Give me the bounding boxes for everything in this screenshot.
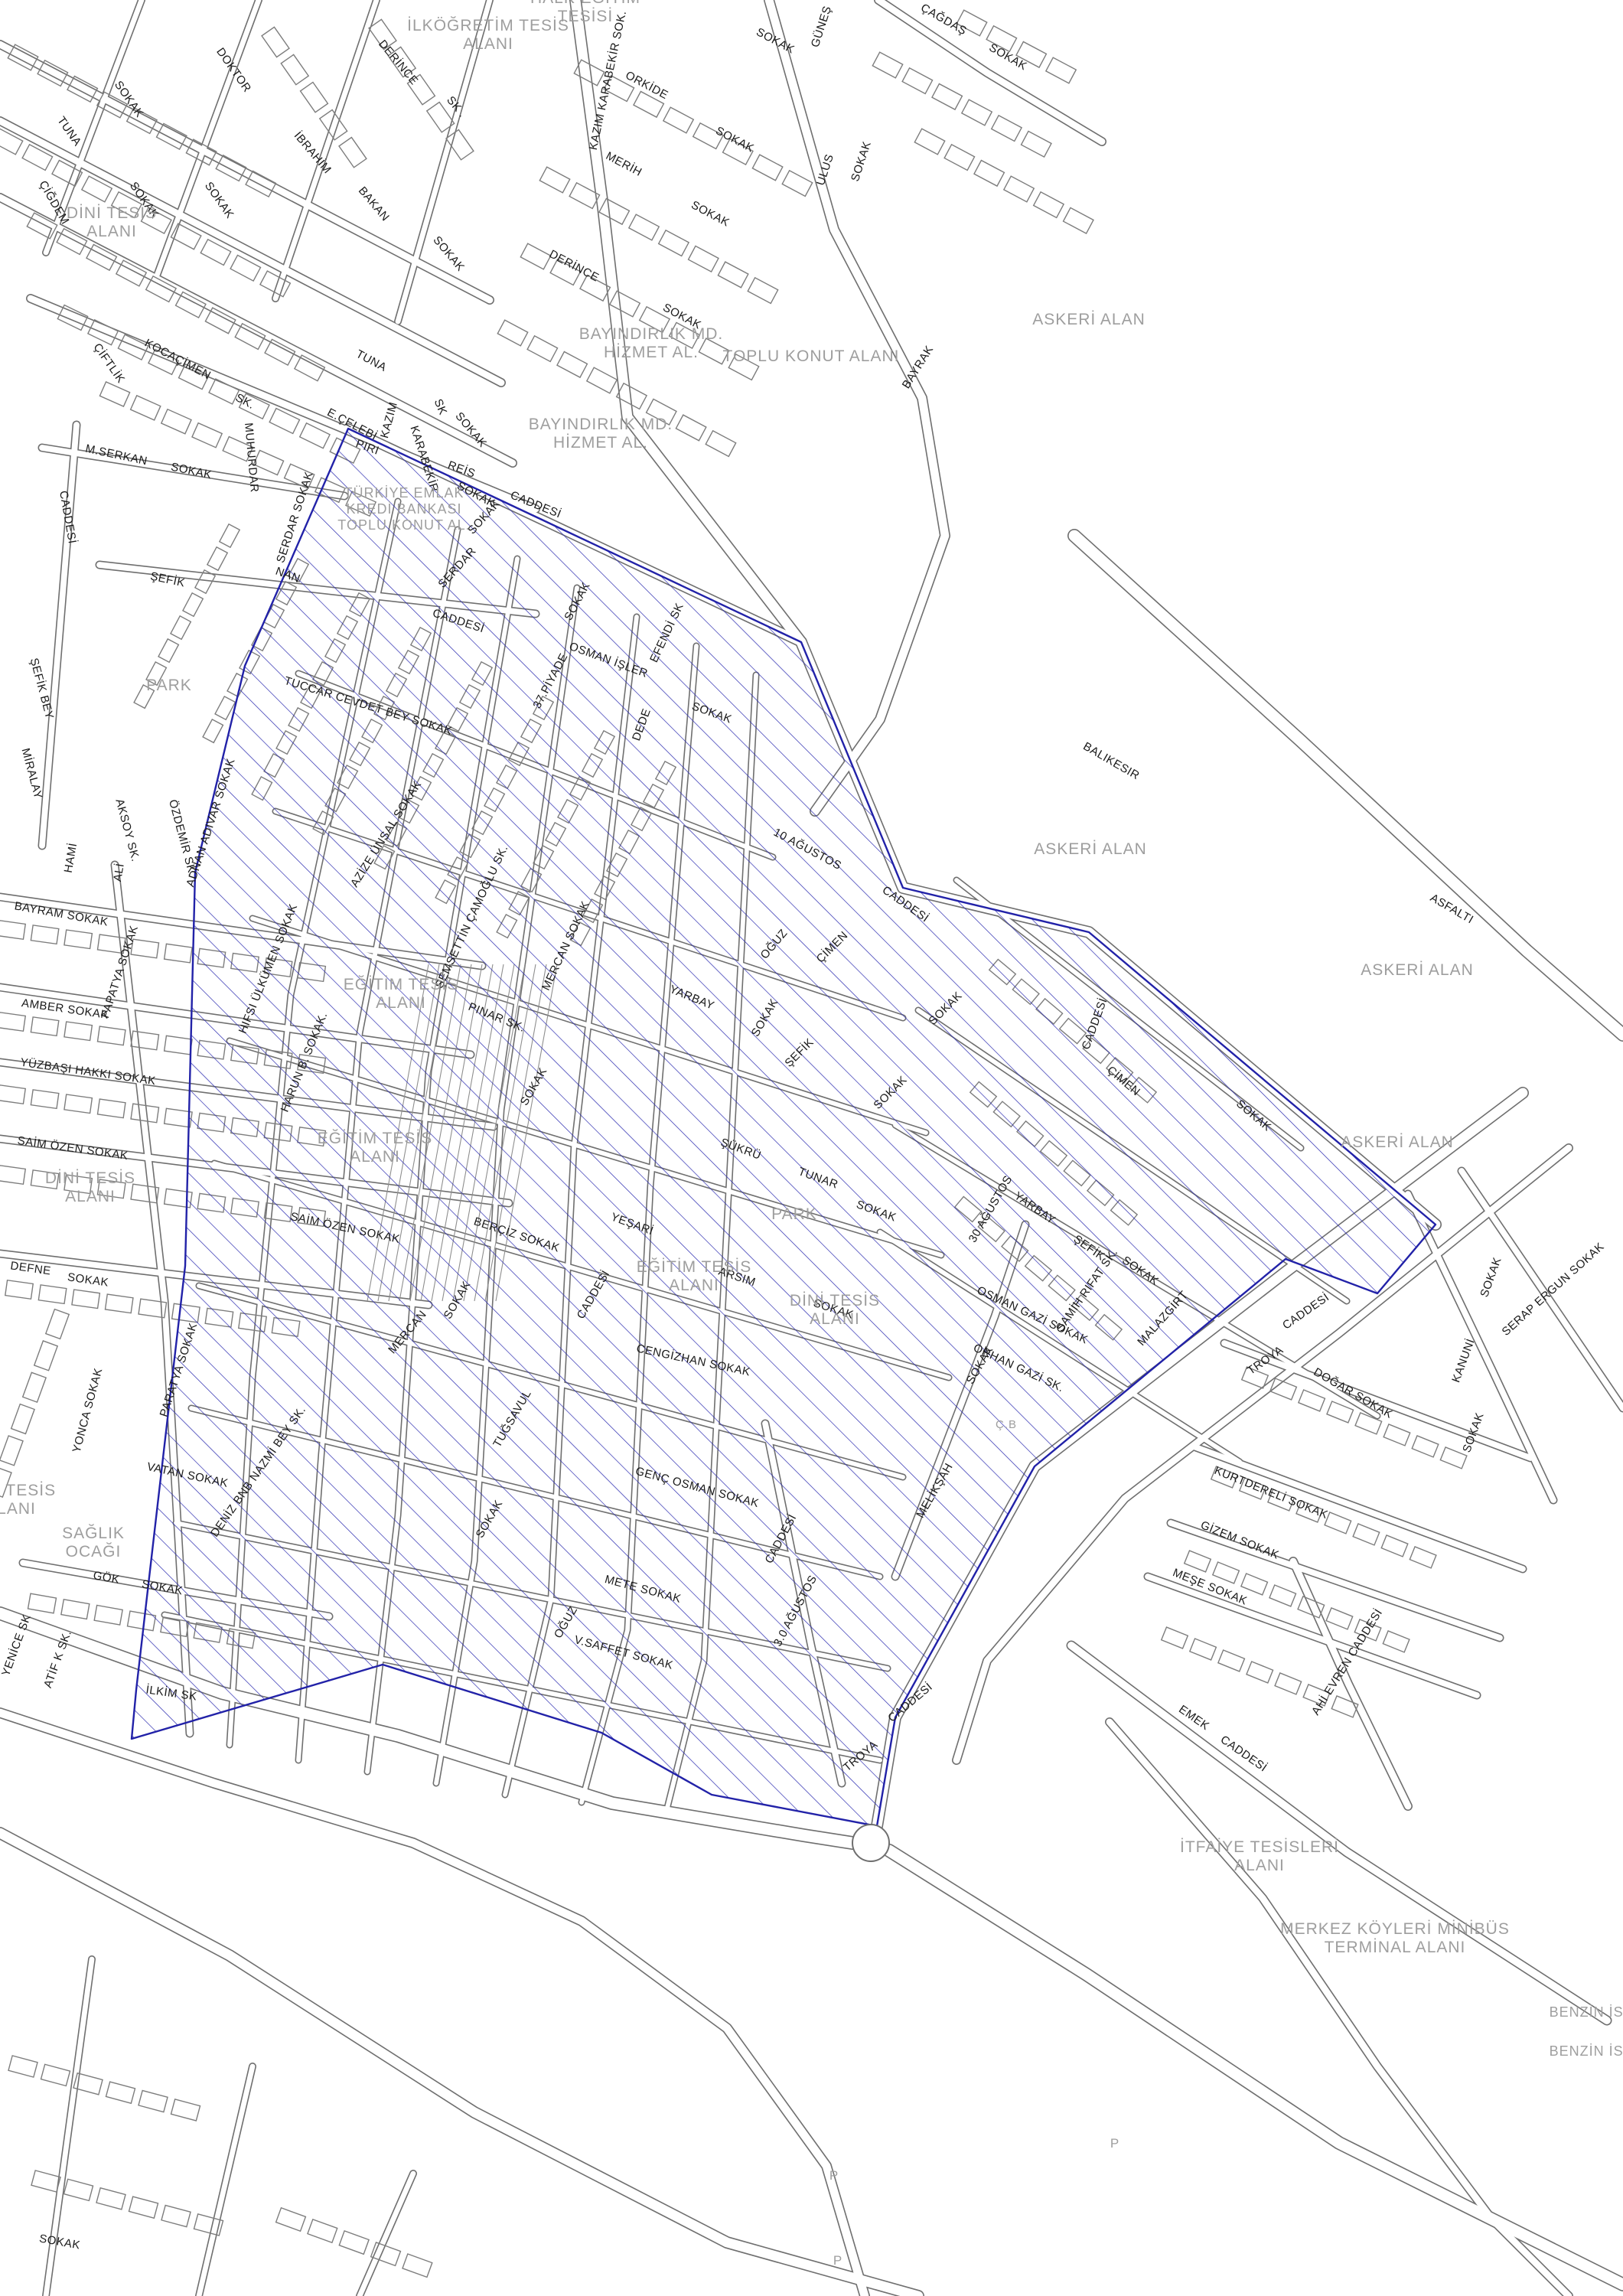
building [46, 1309, 69, 1339]
area-label-line: ALANI [376, 994, 426, 1012]
building [161, 2205, 191, 2226]
street-label: SOKAK [689, 198, 732, 229]
area-label-line: TERMİNAL ALANI [1325, 1939, 1466, 1956]
building [139, 2090, 168, 2112]
area-label-line: P [1110, 2136, 1119, 2151]
area-label-line: DİNİ TESİS [67, 204, 157, 222]
street-label: SOKAK [202, 180, 236, 221]
area-label-line: PARK [146, 677, 192, 694]
building [94, 1605, 122, 1625]
building [1004, 176, 1034, 202]
building [1218, 1650, 1245, 1671]
building [192, 423, 222, 448]
area-label: DİNİ TESİSALANI [0, 1482, 56, 1518]
building [1162, 1627, 1188, 1649]
area-label-line: PARK [771, 1205, 817, 1223]
building [105, 1294, 132, 1313]
area-label: PARK [771, 1205, 817, 1223]
street-label: MERİH [604, 148, 644, 179]
building [752, 155, 782, 181]
area-label-line: BAYINDIRLIK MD. [529, 416, 673, 433]
building [8, 2056, 37, 2077]
road-surface [889, 1851, 1623, 2285]
street-label: SOKAK [1478, 1255, 1504, 1299]
area-label-line: SAĞLIK [62, 1525, 125, 1542]
street-label: TUNA [354, 347, 389, 374]
area-label-line: TOPLU KONUT AL. [337, 517, 470, 533]
building [64, 1022, 92, 1041]
building [281, 54, 308, 84]
area-label-line: EĞİTİM TESİS [637, 1258, 751, 1276]
building [992, 116, 1022, 142]
building [689, 246, 719, 272]
area-label-line: ALANI [463, 35, 513, 53]
street-label: SAİM ÖZEN SOKAK [17, 1133, 129, 1163]
building [64, 2179, 93, 2200]
road-surface [199, 2066, 253, 2296]
area-label-line: ALANI [350, 1148, 400, 1166]
building [72, 1290, 99, 1309]
building [171, 2099, 200, 2121]
street-label: BALIKESIR [1080, 740, 1142, 783]
area-label-line: BENZİN İSTA [1550, 2004, 1623, 2020]
building [1275, 1673, 1302, 1694]
building [0, 921, 25, 940]
area-label-line: MERKEZ KÖYLERİ MİNİBÜS [1280, 1920, 1510, 1938]
building [706, 431, 735, 457]
building [557, 352, 587, 378]
building [748, 278, 777, 304]
building [1353, 1524, 1380, 1545]
building [1410, 1547, 1436, 1568]
area-label-line: İLKÖĞRETİM TESİS [407, 17, 569, 34]
street-label: KANUNİ [1449, 1337, 1477, 1384]
street-label: HAMİ [61, 842, 80, 874]
area-label-line: BENZİN İSTA [1550, 2043, 1623, 2059]
building [1185, 1551, 1211, 1572]
area-label-line: İTFAİYE TESİSLERİ [1180, 1838, 1339, 1856]
area-label-line: TESİSİ [558, 8, 614, 25]
street-label: AKSOY SK. [112, 797, 142, 863]
building [1383, 1424, 1410, 1446]
area-label-line: EĞİTİM TESİS [318, 1130, 432, 1147]
street-label: DOĞAR SOKAK [1312, 1365, 1395, 1421]
building [932, 84, 962, 110]
street-label: ÇİFTLİK [90, 341, 128, 386]
map-markers [852, 1825, 889, 1861]
building [902, 68, 932, 94]
building [962, 99, 992, 126]
building [1326, 1608, 1353, 1629]
building [106, 2082, 135, 2103]
area-label-line: HALK EĞİTİM [530, 0, 640, 7]
area-label-line: DİNİ TESİS [45, 1169, 135, 1187]
building [203, 719, 223, 742]
building [31, 2170, 60, 2192]
building [61, 1600, 90, 1619]
building [0, 1166, 25, 1185]
area-label-line: ALANI [669, 1277, 719, 1294]
building [1299, 1390, 1325, 1411]
street-label: GÜNEŞ [808, 4, 834, 49]
building [0, 1436, 23, 1466]
area-label: BAYINDIRLIK MD.HİZMET AL. [579, 325, 723, 361]
building [207, 547, 227, 570]
building [96, 2188, 125, 2210]
building [1327, 1401, 1354, 1423]
building [587, 367, 617, 393]
area-label-line: EĞİTİM TESİS [344, 976, 458, 993]
area-label: DİNİ TESİSALANI [45, 1169, 135, 1205]
building [520, 243, 550, 269]
building [276, 2208, 306, 2231]
area-label: ASKERİ ALAN [1341, 1133, 1454, 1151]
area-label: TOPLU KONUT ALANI [723, 347, 900, 365]
study-area-hatch-layer [132, 429, 1436, 1826]
area-label: P [1110, 2136, 1119, 2151]
building [129, 2197, 158, 2218]
building [1241, 1574, 1268, 1595]
road-surface [0, 1833, 918, 2296]
road-surface [1408, 1194, 1553, 1500]
building [183, 593, 203, 616]
street-label: MİRALAY [18, 746, 45, 801]
area-label-line: TOPLU KONUT ALANI [723, 347, 900, 365]
building [31, 1090, 58, 1109]
building [782, 171, 812, 197]
building [165, 1035, 192, 1055]
city-plan-map: SOKAKTUNADOKTORÇİĞDEMSOKAKSOKAKİBRAHİMBA… [0, 0, 1623, 2296]
building [23, 1372, 46, 1402]
area-label: İLKÖĞRETİM TESİSALANI [407, 17, 569, 53]
building [1034, 192, 1064, 218]
area-label-line: HİZMET AL. [553, 434, 648, 452]
building [527, 336, 557, 362]
area-label: PARK [146, 677, 192, 694]
building [301, 82, 328, 112]
area-label: ASKERİ ALAN [1361, 961, 1474, 979]
area-label-line: Ç.B [996, 1418, 1017, 1431]
building [676, 415, 706, 441]
area-label: P [829, 2168, 839, 2183]
building [1325, 1512, 1351, 1534]
building [28, 1593, 57, 1613]
building [1213, 1562, 1240, 1583]
building [0, 1013, 25, 1032]
building [308, 2219, 337, 2242]
road-surface [1074, 536, 1623, 1035]
building [1064, 207, 1093, 233]
street-label: KAZIM [378, 400, 400, 439]
building [64, 1094, 92, 1114]
area-label-line: ALANI [810, 1310, 860, 1328]
building [64, 930, 92, 949]
area-label: TÜRKİYE EMLAKKREDİ BANKASITOPLU KONUT AL… [337, 485, 470, 533]
area-label: ASKERİ ALAN [1032, 311, 1146, 328]
road-surface [360, 2174, 413, 2296]
area-label-line: DİNİ TESİS [0, 1482, 56, 1499]
building [1383, 1631, 1410, 1652]
building [659, 230, 689, 256]
area-label-line: TÜRKİYE EMLAK [344, 485, 464, 501]
building [914, 129, 944, 155]
building [1247, 1662, 1273, 1683]
building [31, 1017, 58, 1036]
street-label: KAZIM KARABEKİR SOK. [586, 9, 629, 152]
building [0, 1085, 25, 1104]
building [1381, 1535, 1408, 1557]
area-label-line: P [833, 2253, 842, 2268]
street-label: SOKAK [170, 461, 213, 482]
building [1269, 1585, 1296, 1606]
building [944, 145, 974, 171]
area-label: BENZİN İSTA [1550, 2004, 1623, 2020]
building [497, 320, 527, 346]
building [99, 382, 129, 406]
building [1412, 1436, 1439, 1457]
street-label: SOKAK [849, 139, 874, 183]
road-surface [275, 0, 376, 298]
street-label: TUNA [54, 114, 83, 148]
road-surface [42, 425, 77, 846]
area-label-line: DİNİ TESİS [790, 1292, 880, 1309]
street-label: CADDESİ [57, 490, 80, 545]
building [34, 1341, 57, 1371]
road-surface [878, 0, 1102, 142]
area-label: SAĞLIKOCAĞI [62, 1525, 125, 1561]
area-label-line: ASKERİ ALAN [1032, 311, 1146, 328]
street-label: YONCA SOKAK [70, 1367, 106, 1454]
building [339, 2231, 369, 2254]
street-label: SK [432, 397, 450, 417]
area-label-line: ASKERİ ALAN [1341, 1133, 1454, 1151]
area-label: ASKERİ ALAN [1034, 840, 1147, 858]
street-label: DERİNCE [547, 246, 601, 284]
area-label-line: ALANI [1234, 1857, 1285, 1874]
street-label: SOKAK [67, 1270, 109, 1289]
building [974, 161, 1004, 187]
street-label: ORKİDE [624, 68, 671, 102]
area-label-line: ALANI [65, 1188, 116, 1205]
building [539, 167, 569, 193]
area-label-line: OCAĞI [66, 1543, 122, 1561]
street-label: BAKAN [356, 184, 392, 224]
building [11, 1404, 34, 1434]
street-label: M.SERKAN [84, 442, 148, 468]
street-label: SOKAK [713, 124, 756, 155]
area-label-line: BAYINDIRLIK MD. [579, 325, 723, 343]
street-label: CADDESİ [1218, 1733, 1270, 1775]
building [718, 262, 748, 288]
area-label-line: P [829, 2168, 839, 2183]
building [663, 107, 693, 133]
area-label-line: ALANI [0, 1500, 36, 1518]
roundabout [852, 1825, 889, 1861]
street-label: DERİNCE [376, 37, 421, 87]
area-label-line: ASKERİ ALAN [1034, 840, 1147, 858]
building [339, 138, 367, 168]
area-label-line: HİZMET AL. [604, 344, 699, 361]
road-surface [1071, 1645, 1607, 2020]
area-label: İTFAİYE TESİSLERİALANI [1180, 1838, 1339, 1874]
building [31, 925, 58, 944]
building [1190, 1639, 1217, 1660]
map-canvas: SOKAKTUNADOKTORÇİĞDEMSOKAKSOKAKİBRAHİMBA… [0, 0, 1623, 2296]
area-label-line: ALANI [86, 223, 137, 240]
building [872, 52, 902, 78]
building [402, 2254, 432, 2277]
street-label: GÖK [92, 1568, 120, 1587]
building [161, 409, 191, 434]
street-label: KOCAÇİMEN [142, 336, 213, 383]
building [629, 214, 659, 240]
building [300, 423, 330, 448]
area-label: BENZİN İSTA [1550, 2043, 1623, 2059]
area-label-line: KREDİ BANKASI [346, 501, 461, 517]
road-surface [31, 298, 536, 509]
building [171, 616, 191, 639]
street-label: SOKAK [38, 2232, 81, 2252]
street-label: CADDESİ [1279, 1290, 1331, 1332]
building [41, 2064, 70, 2086]
area-label: Ç.B [996, 1418, 1017, 1431]
street-label: DOKTOR [213, 45, 253, 95]
building [165, 944, 192, 963]
building [262, 27, 289, 57]
building [131, 396, 161, 420]
building [97, 1099, 125, 1118]
building [5, 1280, 33, 1300]
building [97, 1026, 125, 1045]
building [1022, 131, 1051, 157]
area-label-line: ASKERİ ALAN [1361, 961, 1474, 979]
building [38, 1285, 66, 1304]
building [1046, 57, 1076, 83]
street-label: SOKAK [987, 41, 1029, 73]
building [220, 524, 240, 547]
building [158, 639, 178, 662]
area-label: P [833, 2253, 842, 2268]
study-area-hatch [132, 429, 1436, 1826]
